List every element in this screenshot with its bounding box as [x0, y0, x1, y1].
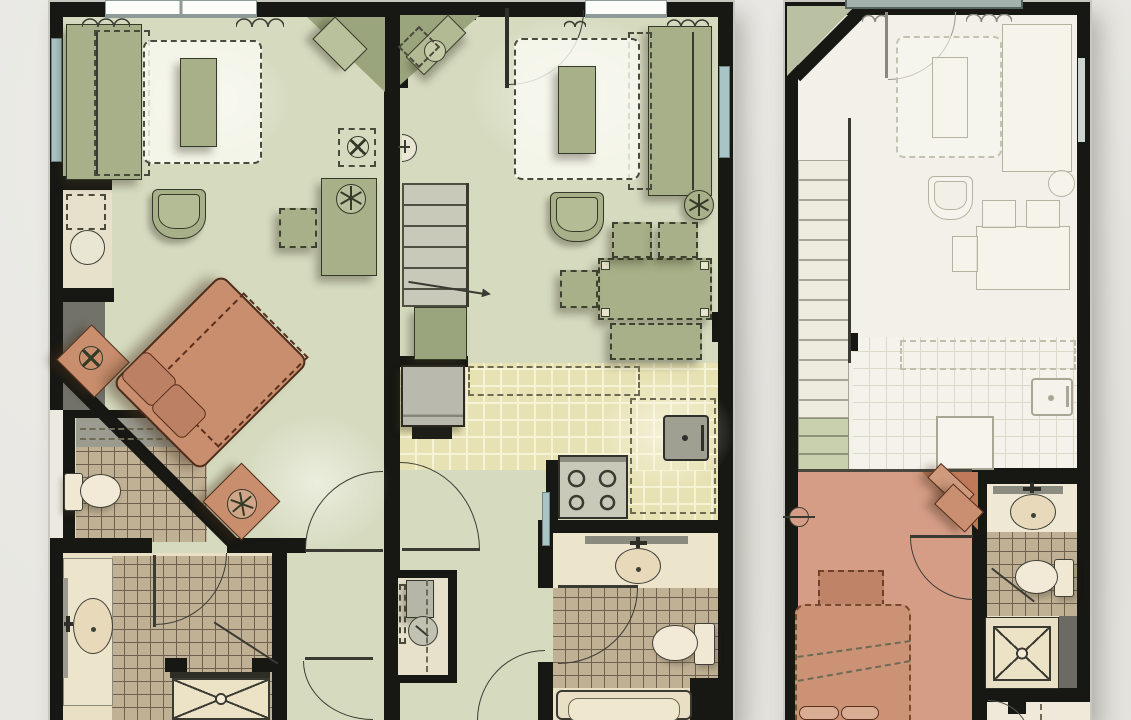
stairs-loft-lower	[798, 418, 849, 470]
unit-b-fridge	[401, 365, 465, 427]
loft-ghost-kitchen-sink	[1031, 378, 1073, 416]
wall-b-tub-right	[690, 678, 718, 720]
unit-b-window	[585, 0, 667, 18]
unit-b-bathtub	[556, 690, 692, 720]
unit-a-side-shaft	[50, 410, 64, 546]
unit-a-desk-chair-blade-3	[350, 186, 352, 210]
unit-a-curtain-left	[82, 18, 130, 29]
loft-wall-sconce-line	[783, 516, 815, 518]
under-stairs-closet	[414, 307, 467, 360]
unit-b-fridge-handle	[412, 427, 452, 439]
unit-b-closet-center-dash	[426, 580, 428, 672]
unit-a-armchair	[152, 189, 206, 239]
loft-lower-dash	[1040, 704, 1042, 720]
loft-ghost-chair-3	[952, 236, 978, 272]
unit-b-kitchen-sink	[663, 415, 709, 461]
loft-bath-sink	[1010, 494, 1056, 530]
loft-curtain-right	[966, 14, 1012, 24]
unit-a-curtain-right	[236, 18, 284, 29]
unit-b-curtain-right	[667, 18, 709, 29]
unit-b-dining-chair-top-2	[658, 222, 698, 258]
loft-bed-headboard	[818, 570, 884, 606]
stairs-loft-upper	[798, 160, 849, 418]
unit-b-counter-top-dashed	[468, 366, 640, 396]
stairs-unit-b-rail	[466, 183, 469, 307]
wall-a-bath2-right	[272, 553, 287, 720]
stairs-loft-rail	[848, 118, 851, 363]
unit-b-right-window-glass	[719, 66, 730, 158]
unit-b-closet-side-dashed	[399, 584, 406, 644]
unit-b-sink-faucet-stem	[636, 537, 640, 548]
unit-b-closet-cabinet	[406, 580, 434, 618]
unit-a-shower-pan	[172, 678, 270, 720]
unit-b-stove	[558, 455, 628, 519]
wall-b-closet-top	[393, 570, 457, 578]
unit-a-sink-faucet-stem	[66, 616, 70, 632]
floor-plan-canvas	[0, 0, 1131, 720]
unit-b-dining-chair-left	[560, 270, 598, 308]
loft-dark-closet	[1059, 616, 1077, 688]
under-stairs-basin-tick-2	[404, 140, 406, 153]
wall-b-closet-right	[448, 578, 457, 683]
unit-a-hall-door-leaf	[305, 657, 373, 660]
wall-b-dining-stub	[712, 312, 733, 342]
unit-a-water-heater	[70, 230, 105, 265]
unit-b-dining-table	[598, 258, 712, 320]
loft-ghost-stove	[936, 416, 994, 470]
unit-b-dining-chair-top-1	[612, 222, 652, 258]
unit-b-side-table-blade-3	[698, 194, 700, 216]
loft-shower-pan	[993, 626, 1051, 681]
wall-a-bath-divider-left	[50, 538, 152, 553]
unit-a-bath2-sink	[73, 598, 113, 654]
unit-b-coffee-table	[558, 66, 596, 154]
unit-a-bath1-shelf-dash-2	[80, 438, 172, 440]
loft-ghost-counter-dashed	[900, 340, 1076, 370]
loft-bed-pillow-1	[799, 706, 839, 720]
unit-b-table-leg-1	[601, 261, 610, 270]
wall-b-closet-bottom	[393, 675, 457, 683]
loft-balcony-rail	[845, 0, 1023, 9]
loft-ghost-sofa	[1002, 24, 1072, 172]
loft-ghost-window-glass	[1078, 58, 1085, 142]
wall-a-closet-bottom	[50, 288, 114, 302]
unit-b-sofa	[648, 26, 712, 196]
unit-b-sofa-seam	[692, 32, 694, 190]
unit-a-toilet	[64, 470, 122, 512]
unit-a-closet-shelf-dashed	[66, 194, 106, 230]
unit-b-toilet	[651, 620, 715, 666]
loft-bed-pillow-2	[841, 706, 879, 720]
loft-ghost-armchair	[928, 176, 973, 220]
unit-b-curtain-left	[564, 18, 586, 29]
unit-a-table-lamp	[347, 136, 369, 158]
unit-a-window	[105, 0, 257, 18]
unit-a-bedroom-door-leaf	[305, 549, 383, 552]
unit-a-left-window-glass	[51, 38, 62, 162]
loft-ghost-dining-table	[976, 226, 1070, 290]
loft-ghost-chair-2	[1026, 200, 1060, 228]
unit-a-sofabed-dashed	[94, 30, 150, 176]
loft-sink-faucet-stem	[1030, 483, 1034, 493]
unit-b-bath-sink	[615, 548, 661, 584]
unit-a-side-chair	[279, 208, 317, 248]
unit-b-table-leg-4	[700, 308, 709, 317]
wall-loft-bed-bath	[970, 468, 1090, 484]
unit-a-nightstand-lamp	[79, 346, 103, 370]
unit-a-coffee-table	[180, 58, 217, 147]
unit-b-table-leg-3	[601, 308, 610, 317]
unit-b-dining-bench	[610, 323, 702, 360]
unit-b-armchair	[550, 192, 604, 242]
loft-curtain-left	[862, 14, 888, 24]
wall-b-bath-top	[538, 520, 718, 533]
loft-ghost-chair-1	[982, 200, 1016, 228]
wall-a-shower-post-left	[165, 658, 187, 672]
loft-ghost-round-table	[1048, 170, 1075, 197]
unit-b-table-leg-2	[700, 261, 709, 270]
unit-b-pantry-glass	[542, 492, 550, 546]
loft-ghost-coffee-table	[932, 57, 968, 138]
